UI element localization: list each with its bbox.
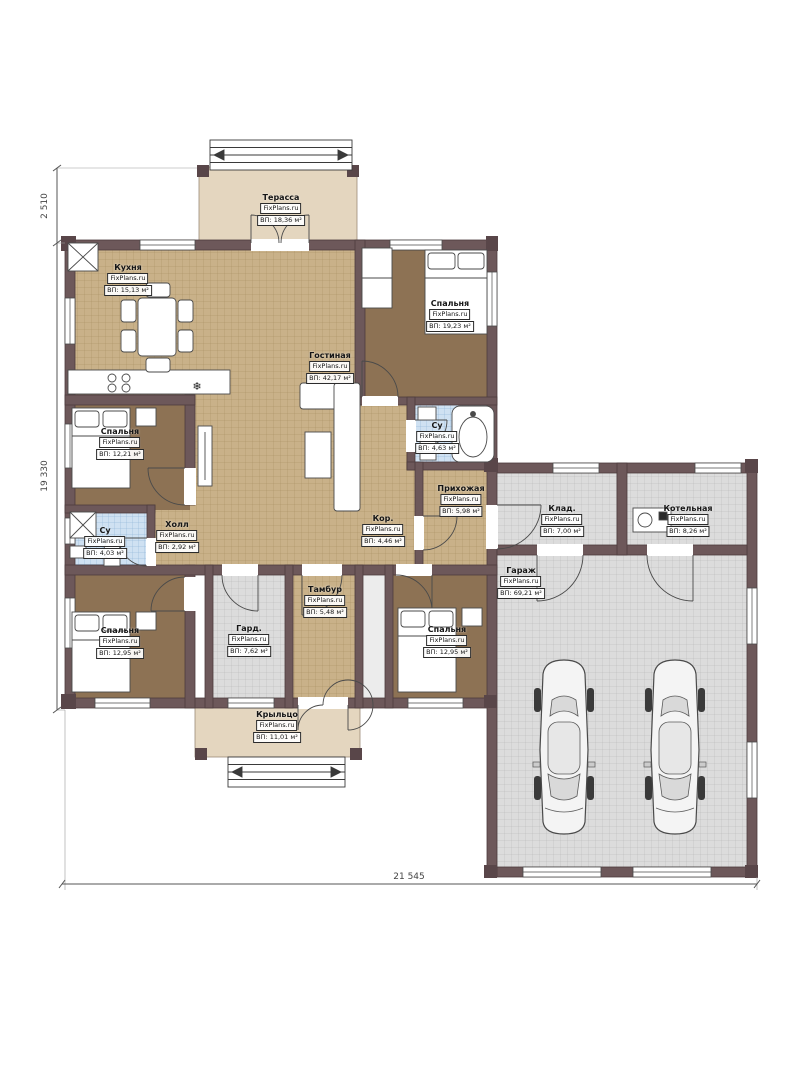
dimension-terrace-depth: 2 510 [40,193,50,219]
sink [70,546,86,558]
floor-plan-canvas: ❄ [0,0,792,1080]
porch-stairs [228,757,345,787]
entry-floor [415,467,497,567]
floor-plan-page: ❄ [0,0,792,1080]
sofa-right [334,383,360,511]
car-2 [644,660,706,834]
dimension-house-side: 19 330 [40,460,50,492]
chair [121,330,136,352]
boiler-equipment [633,508,671,532]
chair [178,330,193,352]
chair [146,283,170,297]
toilet [104,540,120,560]
coffee-table [305,432,331,478]
wardrobe-floor [208,568,288,703]
toilet [420,434,436,454]
tambour-floor [290,570,360,700]
sink [418,407,436,420]
chair [178,300,193,322]
terrace-stairs [210,140,352,170]
terrace-floor [199,167,357,242]
chair [121,300,136,322]
hall-floor [150,500,220,570]
kitchen-counter [68,370,230,394]
snowflake-icon: ❄ [192,380,201,393]
chair [146,358,170,372]
car-1 [533,660,595,834]
living-lower-floor [190,395,420,570]
dimension-total-width: 21 545 [393,872,425,882]
dining-table [138,298,176,356]
porch-floor [195,706,360,757]
